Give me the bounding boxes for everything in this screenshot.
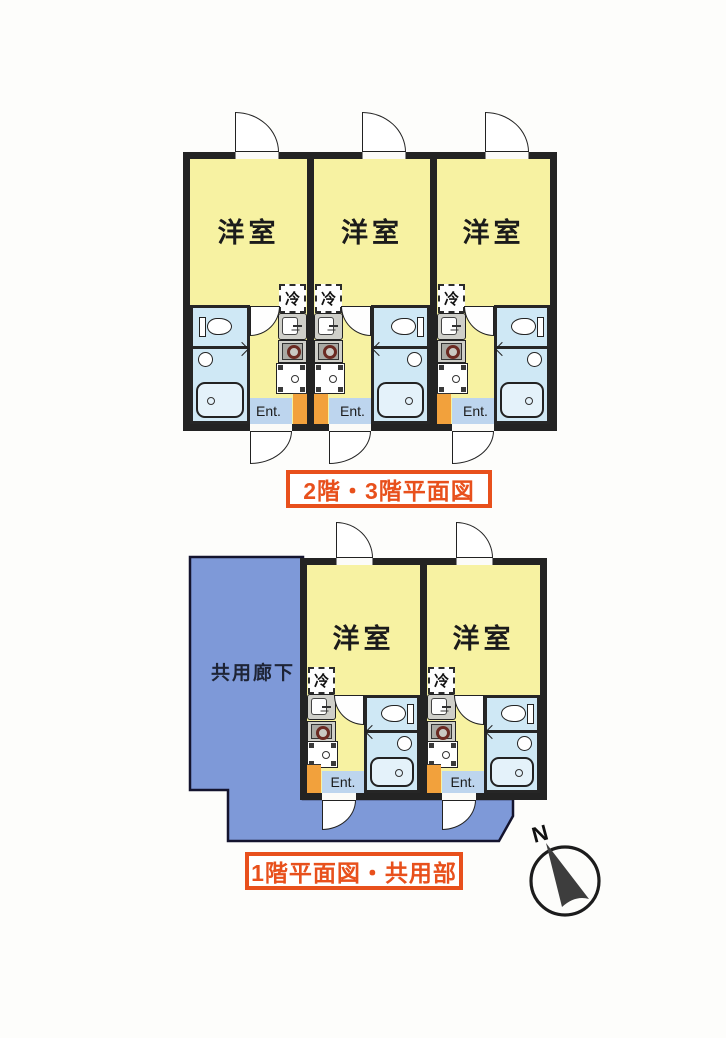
balcony-door-opening <box>485 152 529 159</box>
washing-machine-icon <box>314 363 345 394</box>
refrigerator-space-icon: 冷 <box>428 667 455 694</box>
bathtub-icon <box>490 757 534 787</box>
washbasin-icon <box>407 352 422 367</box>
bathtub-icon <box>500 382 544 418</box>
toilet-icon <box>503 317 544 337</box>
washbasin-icon <box>517 736 532 751</box>
bathroom <box>371 346 430 424</box>
bathroom <box>484 730 540 793</box>
washbasin-icon <box>527 352 542 367</box>
entrance-door-opening <box>329 424 371 431</box>
entrance-floor-strip <box>427 764 441 793</box>
entrance-door-opening <box>452 424 494 431</box>
refrigerator-space-icon: 冷 <box>308 667 335 694</box>
entrance-door-opening <box>322 793 356 800</box>
entrance-hall-strip: Ent. <box>329 398 376 424</box>
bathroom <box>494 346 550 424</box>
entrance-door-opening <box>442 793 476 800</box>
toilet-icon <box>373 704 414 724</box>
caption-2f-3f-text: 2階・3階平面図 <box>303 472 475 506</box>
unit-2f-2: 洋室 冷 Ent. <box>314 159 430 424</box>
refrigerator-space-icon: 冷 <box>438 284 465 313</box>
entrance-door-opening <box>250 424 292 431</box>
entrance-label: Ent. <box>256 403 281 419</box>
interior-door-arc-icon <box>464 306 494 336</box>
bathtub-icon <box>377 382 424 418</box>
entrance-floor-strip <box>437 393 451 424</box>
entrance-label: Ent. <box>340 403 365 419</box>
room-label: 洋室 <box>314 211 430 250</box>
floor-plan-1f: 洋室 冷 Ent. 洋室 冷 <box>300 558 547 800</box>
refrigerator-space-icon: 冷 <box>279 284 306 313</box>
kitchen-sink-icon <box>437 313 466 340</box>
unit-1f-1: 洋室 冷 Ent. <box>307 565 420 793</box>
kitchen-sink-icon <box>307 694 336 720</box>
entrance-label: Ent. <box>463 403 488 419</box>
entrance-label: Ent. <box>451 774 476 790</box>
refrigerator-space-icon: 冷 <box>315 284 342 313</box>
compass-icon: N <box>515 800 635 930</box>
caption-2f-3f: 2階・3階平面図 <box>286 470 492 508</box>
unit-1f-2: 洋室 冷 Ent. <box>427 565 540 793</box>
floor-plan-2f-3f: 洋室 冷 Ent. 洋室 冷 <box>183 152 557 431</box>
balcony-door-opening <box>456 558 493 565</box>
toilet-icon <box>199 317 244 337</box>
entrance-label: Ent. <box>331 774 356 790</box>
entrance-hall-strip: Ent. <box>442 771 484 793</box>
bathtub-icon <box>370 757 414 787</box>
stove-icon <box>437 340 466 363</box>
stove-icon <box>427 721 456 742</box>
corridor-label: 共用廊下 <box>211 658 295 685</box>
washing-machine-icon <box>437 363 468 394</box>
room-label: 洋室 <box>190 211 307 250</box>
room-label: 洋室 <box>307 617 420 656</box>
entrance-floor-strip <box>314 393 328 424</box>
toilet-icon <box>380 317 424 337</box>
washbasin-icon <box>397 736 412 751</box>
entrance-floor-strip <box>307 764 321 793</box>
interior-door-arc-icon <box>250 306 280 336</box>
floor-plan-canvas: 洋室 冷 Ent. 洋室 冷 <box>0 0 726 1038</box>
balcony-door-opening <box>362 152 406 159</box>
bathroom <box>364 730 420 793</box>
entrance-hall-strip: Ent. <box>452 398 499 424</box>
washing-machine-icon <box>276 363 307 394</box>
bathroom <box>190 346 250 424</box>
washbasin-icon <box>198 352 213 367</box>
caption-1f: 1階平面図・共用部 <box>245 852 463 890</box>
toilet-icon <box>493 704 534 724</box>
stove-icon <box>307 721 336 742</box>
caption-1f-text: 1階平面図・共用部 <box>251 854 457 888</box>
entrance-floor-strip <box>293 393 307 424</box>
bathtub-icon <box>196 382 244 418</box>
unit-2f-3: 洋室 冷 Ent. <box>437 159 550 424</box>
room-label: 洋室 <box>427 617 540 656</box>
entrance-hall-strip: Ent. <box>322 771 364 793</box>
compass-north-label: N <box>529 820 551 848</box>
entrance-hall-strip: Ent. <box>245 398 292 424</box>
balcony-door-opening <box>235 152 279 159</box>
kitchen-sink-icon <box>427 694 456 720</box>
kitchen-sink-icon <box>278 313 307 340</box>
stove-icon <box>314 340 343 363</box>
kitchen-sink-icon <box>314 313 343 340</box>
balcony-door-opening <box>336 558 373 565</box>
interior-door-arc-icon <box>334 695 364 725</box>
interior-door-arc-icon <box>341 306 371 336</box>
stove-icon <box>278 340 307 363</box>
unit-2f-1: 洋室 冷 Ent. <box>190 159 307 424</box>
interior-door-arc-icon <box>454 695 484 725</box>
room-label: 洋室 <box>437 211 550 250</box>
